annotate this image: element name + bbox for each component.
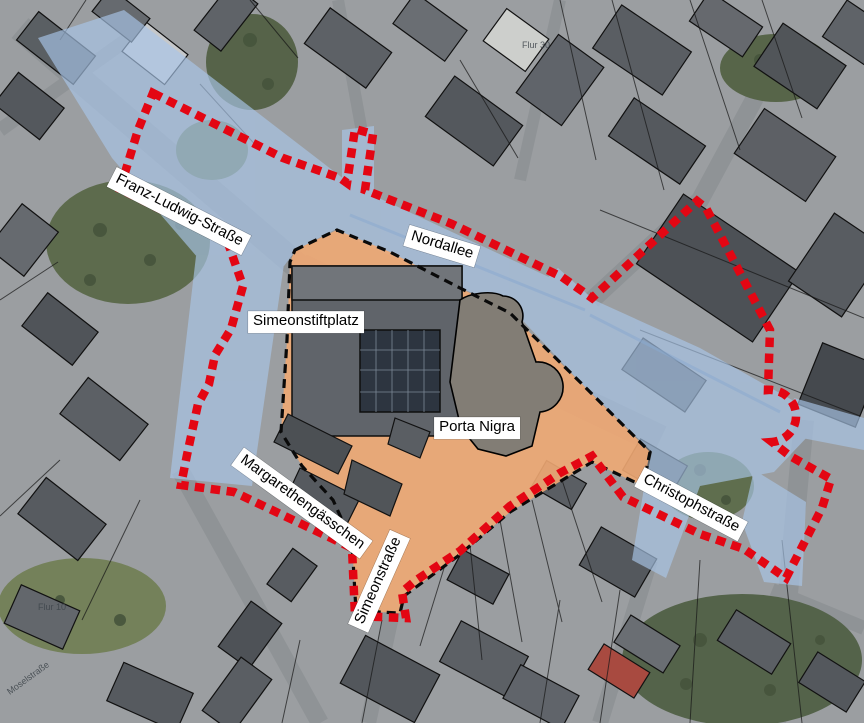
aerial-map: Franz-Ludwig-Straße Nordallee Simeonstif… xyxy=(0,0,864,723)
museum-building xyxy=(292,266,462,436)
map-canvas xyxy=(0,0,864,723)
cadastral-text-flur-10: Flur 10 xyxy=(38,602,66,612)
street-label-simeonstiftplatz: Simeonstiftplatz xyxy=(248,311,364,333)
cadastral-text-flur-30: Flur 30 xyxy=(522,40,550,50)
landmark-label-porta-nigra: Porta Nigra xyxy=(434,417,520,439)
